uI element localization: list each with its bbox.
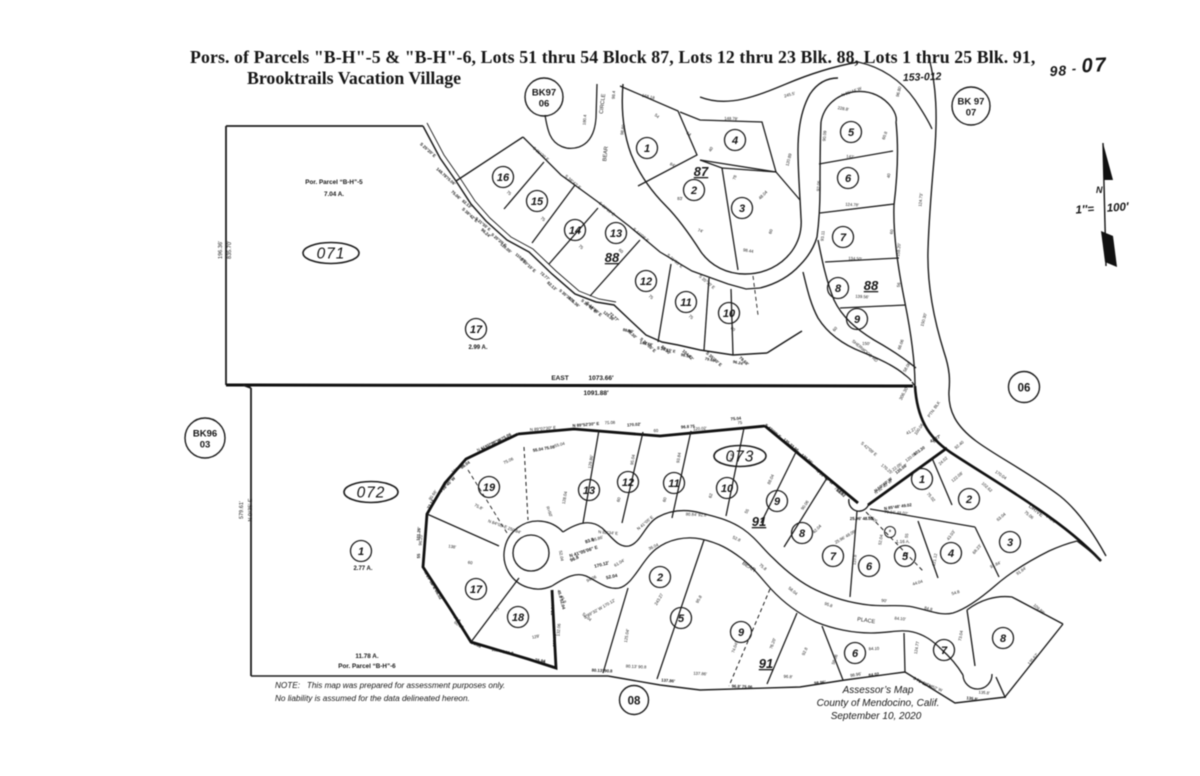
svg-text:8: 8: [799, 528, 806, 540]
svg-text:196.36′: 196.36′: [218, 241, 224, 259]
svg-text:7.04 A.: 7.04 A.: [324, 191, 344, 198]
svg-text:03: 03: [200, 440, 211, 451]
svg-text:1: 1: [919, 474, 925, 486]
svg-text:15: 15: [531, 196, 544, 208]
svg-text:BK96: BK96: [193, 429, 217, 440]
svg-text:96.8′: 96.8′: [783, 674, 792, 679]
svg-text:2: 2: [656, 572, 663, 584]
svg-text:10: 10: [723, 308, 736, 320]
svg-text:17: 17: [470, 584, 483, 596]
svg-text:13: 13: [610, 228, 622, 240]
svg-text:7: 7: [941, 645, 948, 657]
svg-text:*: *: [889, 530, 892, 537]
svg-text:08: 08: [628, 696, 641, 708]
svg-text:9: 9: [738, 627, 745, 639]
svg-text:18: 18: [512, 612, 525, 624]
svg-text:75.08: 75.08: [605, 420, 616, 426]
svg-text:County of Mendocino, Calif.: County of Mendocino, Calif.: [817, 698, 940, 709]
svg-text:84.10: 84.10: [869, 646, 880, 652]
svg-text:11: 11: [680, 297, 691, 309]
svg-text:133.06′: 133.06′: [552, 633, 557, 647]
svg-text:92.05: 92.05: [816, 180, 822, 192]
svg-text:06: 06: [1018, 383, 1031, 395]
svg-text:12: 12: [622, 477, 634, 489]
svg-text:93.11: 93.11: [820, 230, 826, 241]
svg-text:100′: 100′: [1106, 201, 1130, 215]
svg-text:170.02′: 170.02′: [627, 422, 641, 428]
svg-text:579.61′: 579.61′: [239, 501, 245, 519]
svg-text:1.16 A.: 1.16 A.: [896, 539, 910, 544]
svg-text:110.8: 110.8: [852, 554, 858, 565]
svg-text:EAST: EAST: [551, 375, 568, 382]
svg-text:Por. Parcel “B-H”-5: Por. Parcel “B-H”-5: [305, 179, 363, 186]
svg-text:Assessor’s Map: Assessor’s Map: [842, 685, 914, 696]
svg-text:NOTE: This map was prepared: NOTE: This map was prepared for assessme…: [275, 681, 505, 690]
svg-text:25.96′ 48.02′: 25.96′ 48.02′: [850, 516, 874, 521]
svg-text:11.78 A.: 11.78 A.: [355, 653, 378, 660]
svg-text:071: 071: [317, 245, 346, 262]
svg-text:3: 3: [739, 203, 745, 215]
svg-text:91: 91: [759, 656, 773, 671]
svg-text:19: 19: [483, 482, 496, 494]
svg-text:2: 2: [690, 185, 697, 197]
svg-text:4: 4: [947, 548, 954, 560]
svg-text:120.02′: 120.02′: [693, 426, 707, 432]
svg-text:N: N: [1096, 185, 1103, 195]
svg-text:1″=: 1″=: [1075, 203, 1095, 216]
svg-text:9: 9: [774, 496, 781, 508]
svg-text:2: 2: [965, 494, 972, 506]
svg-text:835.70′: 835.70′: [227, 241, 233, 259]
svg-text:2.77 A.: 2.77 A.: [353, 566, 372, 572]
svg-text:6: 6: [845, 173, 852, 185]
svg-text:83′: 83′: [677, 196, 683, 201]
svg-text:Por. Parcel “B-H”-6: Por. Parcel “B-H”-6: [338, 663, 396, 670]
svg-text:142′: 142′: [846, 154, 854, 160]
svg-text:87: 87: [694, 164, 709, 179]
svg-text:N 0°35′ E: N 0°35′ E: [248, 498, 254, 521]
svg-text:90.09: 90.09: [822, 130, 828, 142]
svg-text:1091.88′: 1091.88′: [583, 390, 608, 397]
svg-text:91: 91: [752, 514, 766, 529]
svg-text:98.4: 98.4: [611, 90, 617, 99]
svg-text:1: 1: [644, 143, 650, 155]
svg-text:90′: 90′: [881, 598, 887, 603]
svg-text:5: 5: [848, 127, 855, 139]
svg-text:No liability is assumed for th: No liability is assumed for the data del…: [275, 694, 470, 703]
svg-text:BK97: BK97: [532, 88, 556, 99]
svg-text:8: 8: [835, 283, 842, 295]
svg-text:3: 3: [1007, 537, 1013, 549]
svg-text:124.78′: 124.78′: [845, 202, 859, 208]
svg-text:9: 9: [854, 314, 861, 326]
svg-text:September 10, 2020: September 10, 2020: [831, 711, 922, 722]
svg-text:Pors. of Parcels "B-H"-5 & "B-: Pors. of Parcels "B-H"-5 & "B-H"-6, Lots…: [190, 47, 1035, 67]
svg-text:11: 11: [668, 478, 679, 490]
svg-text:7: 7: [840, 232, 847, 244]
svg-text:14: 14: [569, 225, 581, 237]
svg-text:07: 07: [966, 108, 977, 119]
svg-text:Brooktrails Vacation Village: Brooktrails Vacation Village: [247, 68, 461, 88]
svg-text:88: 88: [864, 278, 879, 293]
svg-text:139.56′: 139.56′: [855, 294, 869, 300]
svg-text:16: 16: [497, 172, 510, 184]
svg-text:072: 072: [357, 484, 386, 501]
svg-text:137.86′: 137.86′: [693, 671, 707, 677]
svg-text:7: 7: [830, 551, 837, 563]
svg-text:5: 5: [902, 551, 909, 563]
svg-text:1073.66′: 1073.66′: [588, 375, 613, 382]
svg-text:17: 17: [470, 324, 483, 336]
svg-text:148.78′: 148.78′: [724, 116, 738, 121]
svg-text:134.50′: 134.50′: [848, 256, 862, 262]
svg-text:84.10′: 84.10′: [894, 616, 906, 622]
svg-text:5: 5: [678, 613, 685, 625]
svg-text:92.04: 92.04: [550, 604, 555, 615]
svg-text:1: 1: [358, 546, 364, 558]
svg-text:10: 10: [721, 483, 734, 495]
svg-text:135.8′: 135.8′: [978, 690, 990, 696]
svg-text:06: 06: [539, 99, 550, 110]
svg-text:8: 8: [1000, 633, 1007, 645]
svg-text:55: 55: [416, 553, 421, 559]
svg-text:153-012: 153-012: [903, 71, 942, 84]
svg-text:BK 97: BK 97: [958, 97, 985, 108]
svg-text:96.8 75: 96.8 75: [681, 423, 696, 429]
svg-text:4: 4: [731, 135, 738, 147]
svg-text:88: 88: [605, 250, 620, 265]
svg-text:2.99 A.: 2.99 A.: [468, 345, 487, 351]
svg-text:180.4: 180.4: [582, 114, 588, 126]
svg-text:12: 12: [640, 276, 652, 288]
svg-text:6: 6: [852, 648, 859, 660]
svg-text:6: 6: [866, 561, 873, 573]
svg-text:13: 13: [583, 485, 595, 497]
